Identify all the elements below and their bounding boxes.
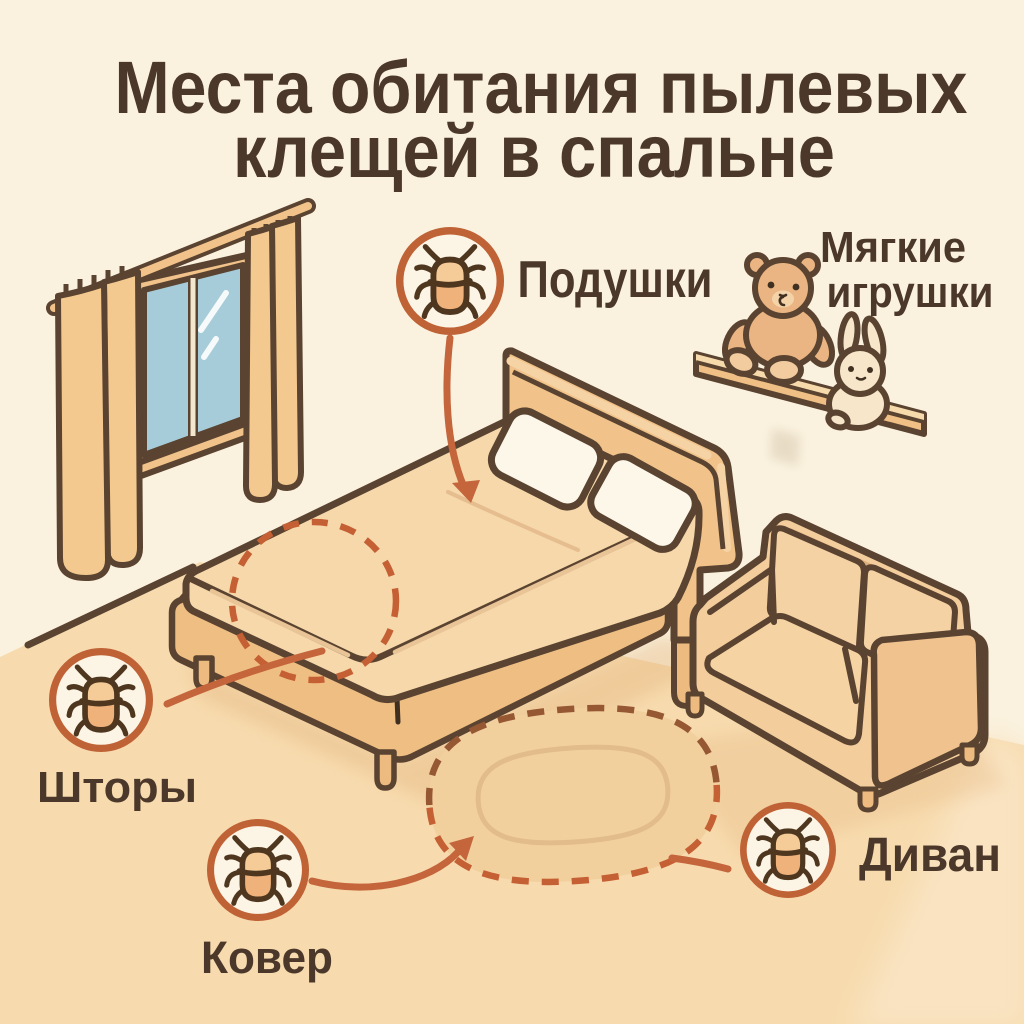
svg-text:Ковер: Ковер <box>201 932 333 983</box>
svg-text:клещей в спальне: клещей в спальне <box>233 110 835 193</box>
svg-text:Мягкие: Мягкие <box>820 223 966 272</box>
svg-text:Подушки: Подушки <box>518 251 713 309</box>
svg-text:Диван: Диван <box>859 829 1001 882</box>
svg-text:Шторы: Шторы <box>37 763 197 812</box>
svg-text:игрушки: игрушки <box>827 268 994 317</box>
